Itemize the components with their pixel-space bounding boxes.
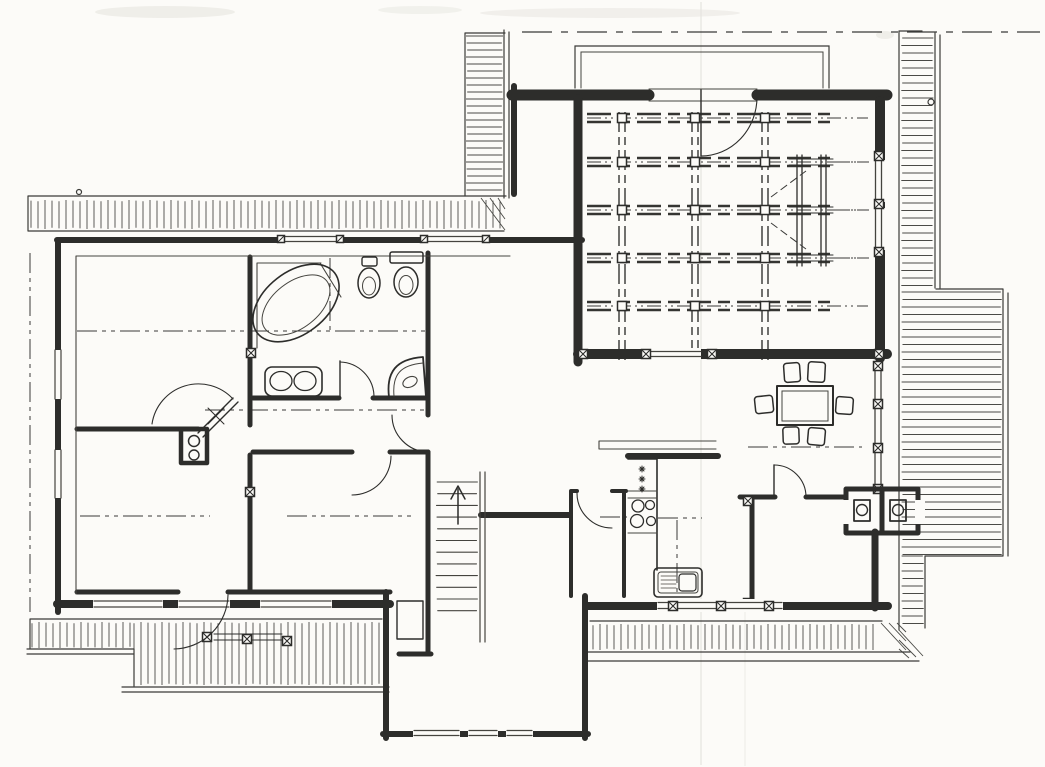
- beam-joint-pads: [618, 114, 770, 311]
- dining-furniture: [754, 362, 853, 446]
- staircase: [436, 472, 485, 642]
- walls: [57, 86, 888, 738]
- chimney-flues: [840, 489, 925, 533]
- room-door-swing: [352, 456, 391, 495]
- corner-shower: [388, 357, 426, 397]
- freezer-asterisks: [639, 466, 645, 492]
- dormer-outline: [575, 46, 829, 88]
- drain-mark-icon: [928, 99, 934, 105]
- deck-top-left: [28, 190, 506, 232]
- kitchen-fixtures: [599, 441, 716, 597]
- floor-plan-drawing: [0, 0, 1045, 767]
- pass-through-counter: [599, 441, 716, 449]
- built-in-cupboard: [397, 601, 423, 639]
- deck-top-vertical: [465, 30, 509, 230]
- bedroom-door: [774, 465, 806, 497]
- glass-wall-dining: [874, 362, 883, 494]
- kitchen-counter: [628, 459, 657, 570]
- beam-ladder-elements: [789, 155, 833, 266]
- floor-plan-canvas: [0, 0, 1045, 767]
- pantry-door-swing: [577, 493, 612, 528]
- section-lines: [30, 32, 1040, 612]
- deck-bottom-left: [27, 619, 389, 692]
- vanity-double-basin: [265, 367, 322, 396]
- drain-mark-icon: [77, 190, 82, 195]
- dining-table: [777, 386, 833, 425]
- kitchen-sink: [654, 568, 702, 597]
- toilet: [390, 252, 423, 297]
- bathroom-fixtures: [238, 248, 426, 397]
- bathroom-door: [340, 361, 374, 397]
- dining-chairs: [754, 362, 853, 446]
- hall-door-swing: [392, 415, 428, 452]
- cooktop-burners: [631, 500, 656, 528]
- fireplace-stove: [181, 429, 207, 463]
- deck-right: [899, 31, 1008, 658]
- bidet: [358, 257, 380, 298]
- corner-bathtub: [238, 248, 353, 357]
- wall-inner-faces: [76, 256, 510, 594]
- deck-bottom-right: [584, 621, 919, 661]
